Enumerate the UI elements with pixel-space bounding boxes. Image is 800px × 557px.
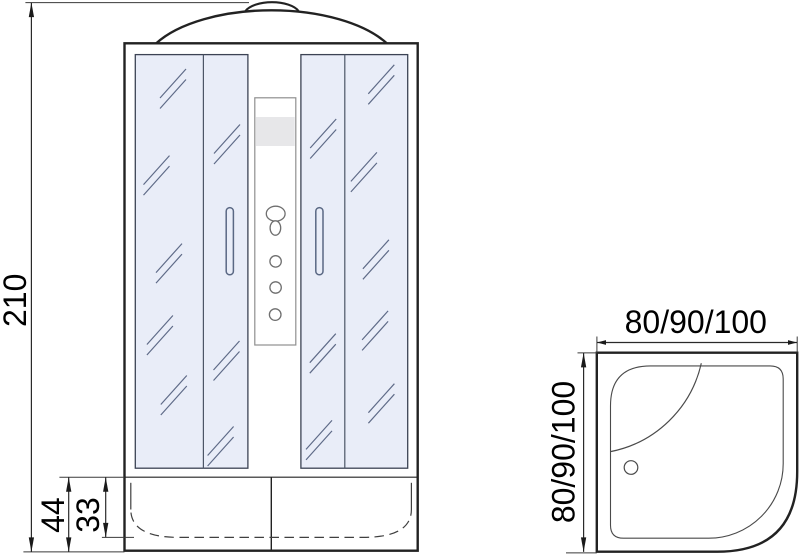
svg-text:80/90/100: 80/90/100 [625, 304, 767, 340]
svg-text:33: 33 [70, 497, 106, 533]
svg-text:44: 44 [35, 497, 71, 533]
svg-text:80/90/100: 80/90/100 [546, 381, 582, 523]
svg-text:210: 210 [0, 274, 33, 327]
